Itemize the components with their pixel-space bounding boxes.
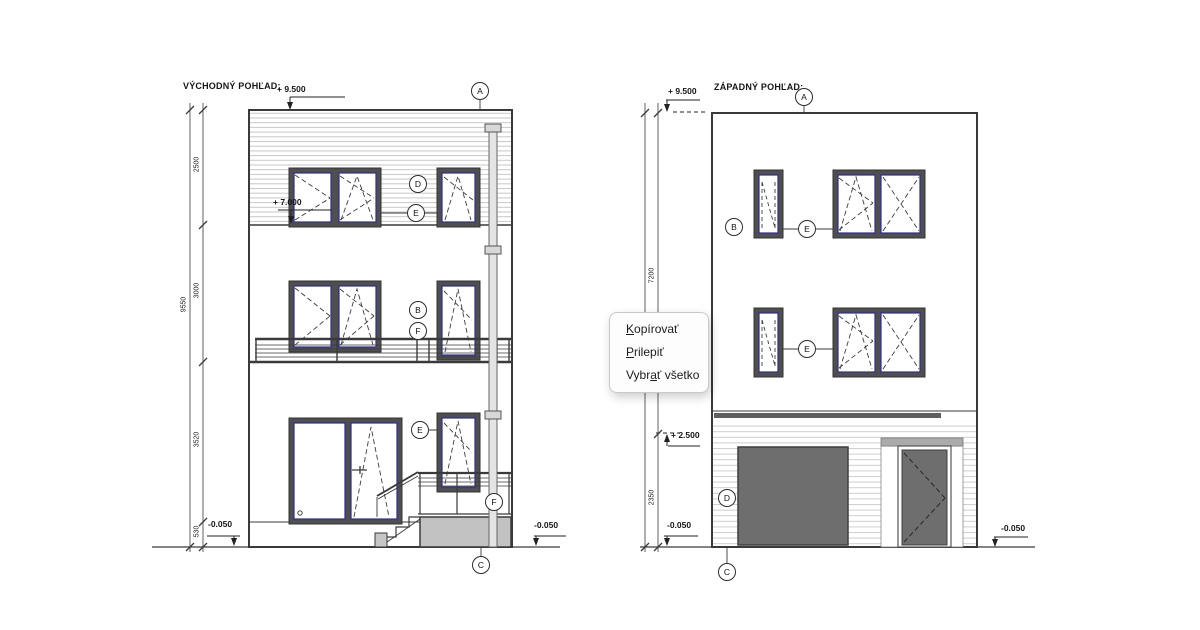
west-dim-7200: 7200 [649, 251, 656, 301]
west-level-top: + 9.500 [668, 86, 697, 96]
grid-bubble-f-ground-east: F [485, 493, 503, 511]
east-level-top: + 9.500 [277, 84, 306, 94]
east-dim-3520: 3520 [194, 415, 201, 465]
east-elevation [152, 97, 566, 556]
menu-item-paste-post: rilepiť [634, 345, 664, 359]
west-dim-2350: 2350 [649, 473, 656, 523]
east-dim-3000: 3000 [194, 266, 201, 316]
menu-item-copy[interactable]: Kopírovať [610, 318, 708, 341]
grid-bubble-e-top-east: E [407, 204, 425, 222]
menu-item-select-all[interactable]: Vybrať všetko [610, 364, 708, 387]
grid-bubble-d-east: D [409, 175, 427, 193]
grid-bubble-e-lower-west: E [798, 340, 816, 358]
west-level-garage: + 2.500 [671, 430, 700, 440]
drawing-canvas[interactable]: VÝCHODNÝ POHĽAD: + 9.500 + 7.000 -0.050 … [0, 0, 1200, 630]
menu-item-select-all-post: ť všetko [657, 368, 700, 382]
grid-bubble-e-upper-west: E [798, 220, 816, 238]
grid-bubble-a-east: A [471, 82, 489, 100]
east-dim-total: 9550 [181, 280, 188, 330]
context-menu: Kopírovať Prilepiť Vybrať všetko [609, 312, 709, 393]
west-level-base-right: -0.050 [1001, 523, 1025, 533]
grid-bubble-e-ground-east: E [411, 421, 429, 439]
east-title: VÝCHODNÝ POHĽAD: [183, 81, 281, 91]
west-title: ZÁPADNÝ POHĽAD: [714, 82, 803, 92]
grid-bubble-b-west: B [725, 218, 743, 236]
east-dim-530: 530 [194, 507, 201, 557]
menu-item-paste-accel: P [626, 345, 634, 359]
grid-bubble-f-mid-east: F [409, 322, 427, 340]
grid-bubble-b-east: B [409, 301, 427, 319]
menu-item-copy-post: opírovať [634, 322, 679, 336]
menu-item-select-all-accel: a [650, 368, 657, 382]
grid-bubble-a-west: A [795, 88, 813, 106]
east-dim-2500: 2500 [194, 140, 201, 190]
grid-bubble-c-west: C [718, 563, 736, 581]
east-level-base-left: -0.050 [208, 519, 232, 529]
grid-bubble-c-east: C [472, 556, 490, 574]
grid-bubble-d-west: D [718, 489, 736, 507]
menu-item-select-all-pre: Vybr [626, 368, 650, 382]
menu-item-copy-accel: K [626, 322, 634, 336]
east-level-base-right: -0.050 [534, 520, 558, 530]
west-level-base-left: -0.050 [667, 520, 691, 530]
east-level-mid: + 7.000 [273, 197, 302, 207]
menu-item-paste[interactable]: Prilepiť [610, 341, 708, 364]
